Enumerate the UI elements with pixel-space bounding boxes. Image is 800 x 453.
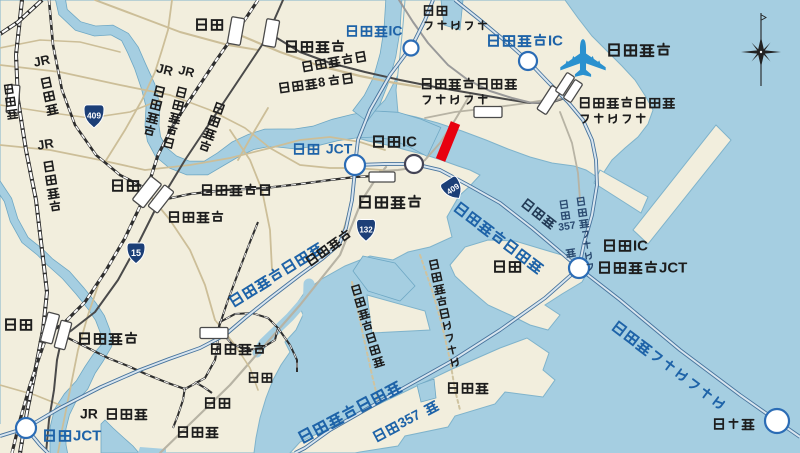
svg-text:JR: JR	[36, 135, 55, 153]
svg-text:IC: IC	[389, 23, 403, 39]
svg-text:IC: IC	[402, 133, 417, 150]
svg-text:JR: JR	[80, 406, 98, 422]
svg-text:409: 409	[87, 111, 101, 121]
svg-text:JCT: JCT	[659, 259, 687, 276]
svg-text:IC: IC	[633, 237, 648, 254]
svg-text:JCT: JCT	[73, 427, 101, 444]
svg-text:IC: IC	[548, 32, 563, 49]
svg-text:JCT: JCT	[326, 141, 353, 157]
svg-text:132: 132	[359, 226, 373, 235]
svg-text:15: 15	[131, 248, 141, 258]
svg-text:357: 357	[557, 219, 576, 233]
